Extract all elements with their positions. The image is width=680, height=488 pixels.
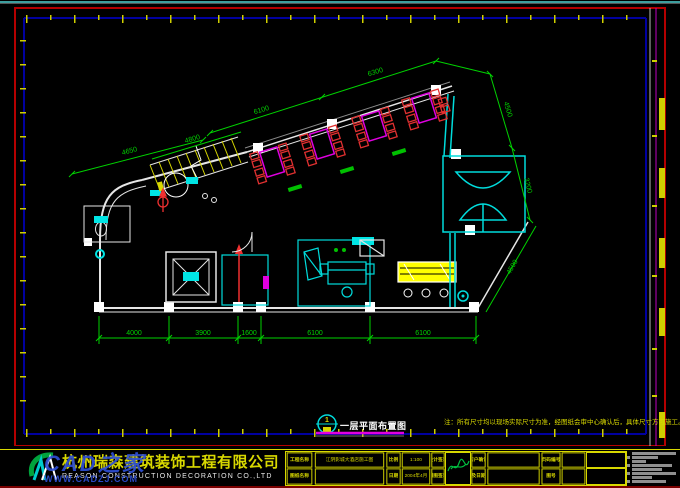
stool [422,289,430,297]
sheet-number-label: 图号 [542,468,561,484]
right-ruler [650,8,665,446]
revision-bars [632,452,678,484]
lobby-room [222,232,269,305]
svg-text:6300: 6300 [367,67,384,78]
sheet-number-value [562,468,586,484]
drawing-title-group: 1 一层平面布置图 注：所有尺寸均以现场实际尺寸为准，经图纸会审中心确认后，具体… [316,415,680,436]
extra-cell [586,452,626,468]
svg-text:4800: 4800 [184,134,201,145]
title-block-strip: 杭州瑞森建筑装饰工程有限公司 REASON CONSTRUCTION DECOR… [0,446,680,488]
cad-sheet: 4000 3900 1600 6100 6100 6100 6300 4650 … [0,0,680,488]
date-value: 2004年4月 [402,468,431,484]
svg-text:1600: 1600 [241,330,257,337]
svg-text:3900: 3900 [195,330,211,337]
wc-tank [94,216,108,223]
svg-text:6100: 6100 [307,330,323,337]
company-logo-icon [27,452,61,486]
scale-label: 比例 [386,452,400,467]
sofa [328,262,366,284]
frame-ticks [20,15,628,437]
elevator [166,252,216,302]
extra-cell [586,468,626,485]
svg-text:6100: 6100 [415,330,431,337]
right-rooms [443,94,525,307]
project-name-value: 江阴影城大酒店施工图 [315,452,384,467]
project-name-label: 工程名称 [287,452,313,467]
date-label: 日期 [386,468,400,484]
company-name-en: REASON CONSTRUCTION DECORATION CO.,LTD [62,473,292,480]
coffee-table [342,287,352,297]
drawing-note: 注：所有尺寸均以现场实际尺寸为准，经图纸会审中心确认后，具体尺寸方可施工。 [444,417,680,426]
decor-bowl-top [456,172,510,188]
red-border [15,8,665,446]
company-name-cn: 杭州瑞森建筑装饰工程有限公司 [62,451,292,472]
svg-text:3200: 3200 [522,177,533,194]
svg-text:4650: 4650 [121,146,138,157]
round-table-area [150,173,217,212]
reception-counter [398,262,468,301]
designer-signature [445,452,471,485]
tv-console [352,237,374,245]
toilet-room [84,206,130,258]
window-edge-line [0,1,680,3]
bubble-number: 1 [325,417,329,424]
door-leaf [263,276,269,289]
draft-seal-label: 制图签章 [431,468,444,484]
elevator-cab [183,272,199,281]
svg-text:4500: 4500 [506,259,520,276]
client-confirm-value [487,452,539,467]
company-name-block: 杭州瑞森建筑装饰工程有限公司 REASON CONSTRUCTION DECOR… [62,451,292,480]
page-number-label: 页码编号 [542,452,561,467]
sheet-name-value [315,468,384,484]
client-confirm-label: 客户确认 [471,452,485,467]
design-seal-label: 设计签章 [431,452,444,467]
confirm-date-value [487,468,539,484]
title-block-table: 工程名称 江阴影城大酒店施工图 比例 1:100 设计签章 客户确认 页码编号 … [285,451,627,486]
navy-border [24,18,646,434]
page-number-value [562,452,586,467]
svg-text:4500: 4500 [502,101,513,118]
dining-tables [250,89,450,192]
stool [404,289,412,297]
drawing-title: 一层平面布置图 [340,420,407,431]
drawing-canvas: 4000 3900 1600 6100 6100 6100 6300 4650 … [0,0,680,446]
lounge [298,237,384,306]
stool [440,289,448,297]
dimensions: 4000 3900 1600 6100 6100 6100 6300 4650 … [69,58,536,344]
window-wall [245,82,454,157]
svg-text:4000: 4000 [126,330,142,337]
confirm-date-label: 及日期 [471,468,485,484]
sheet-name-label: 图纸名称 [287,468,313,484]
door-swing-arc [232,232,252,252]
scale-value: 1:100 [402,452,431,467]
sheet-frame [0,1,680,446]
